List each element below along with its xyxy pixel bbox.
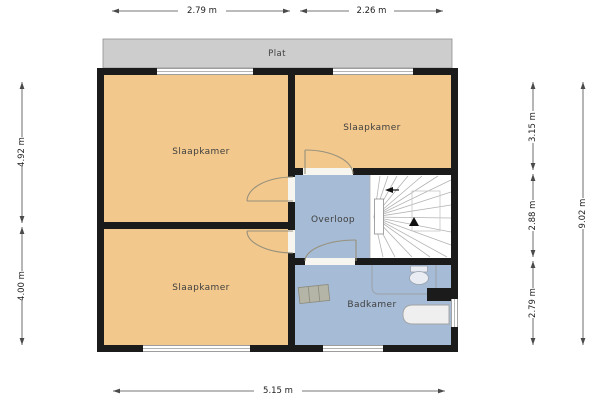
label-bedroom-top-right: Slaapkamer [343, 123, 401, 133]
dimension-left-upper: 4.92 m [17, 82, 27, 223]
label-bedroom-bottom-left: Slaapkamer [172, 283, 230, 293]
toilet-icon [410, 272, 429, 285]
dim-label-top-right: 2.26 m [357, 6, 387, 16]
door-opening-bedroom-top-right [303, 168, 353, 175]
door-opening-bedroom-top-left [288, 177, 295, 202]
dim-label-top-left: 2.79 m [187, 6, 217, 16]
room-bedroom-top-right [295, 75, 451, 168]
door-opening-bathroom [305, 258, 355, 265]
window-bathroom-bottom [323, 345, 383, 352]
window-bottom-left [143, 345, 250, 352]
label-bedroom-top-left: Slaapkamer [172, 147, 230, 157]
label-landing: Overloop [311, 215, 355, 225]
stairs-newel-post [375, 199, 384, 234]
dim-label-left-lower: 4.00 m [17, 271, 27, 301]
wall-between-left-bedrooms [104, 222, 288, 229]
wall-left [97, 68, 104, 352]
label-bathroom: Badkamer [347, 300, 396, 310]
dim-label-right-top: 3.15 m [528, 112, 538, 142]
wall-corridor [288, 75, 295, 345]
window-bathroom-right [451, 299, 458, 327]
dimension-right-top: 3.15 m [528, 82, 538, 170]
dim-label-bottom: 5.15 m [263, 386, 293, 396]
flat-roof: Plat [103, 39, 452, 68]
wall-stub-chimney [427, 288, 451, 301]
dimension-bottom-width: 5.15 m [113, 386, 445, 396]
bathtub-icon [403, 305, 449, 324]
dim-label-right-bottom: 2.79 m [528, 288, 538, 318]
window-top-right [333, 68, 413, 75]
door-opening-bedroom-bottom-left [288, 230, 295, 253]
dimension-top-left-width: 2.79 m [112, 6, 290, 16]
staircase [370, 175, 451, 258]
floorplan-page: Plat [0, 0, 600, 400]
dimension-left-lower: 4.00 m [17, 227, 27, 345]
dim-label-right-middle: 2.88 m [528, 201, 538, 231]
floor-plan-drawing: Plat [0, 0, 600, 400]
dim-label-right-total: 9.02 m [578, 199, 588, 229]
dimension-right-total: 9.02 m [578, 82, 588, 345]
flat-roof-label: Plat [268, 49, 286, 59]
window-top-left [157, 68, 253, 75]
dimension-right-middle: 2.88 m [528, 174, 538, 257]
dim-label-left-upper: 4.92 m [17, 137, 27, 167]
dimension-right-bottom: 2.79 m [528, 261, 538, 345]
dimension-top-right-width: 2.26 m [300, 6, 443, 16]
radiator-icon [298, 284, 330, 303]
